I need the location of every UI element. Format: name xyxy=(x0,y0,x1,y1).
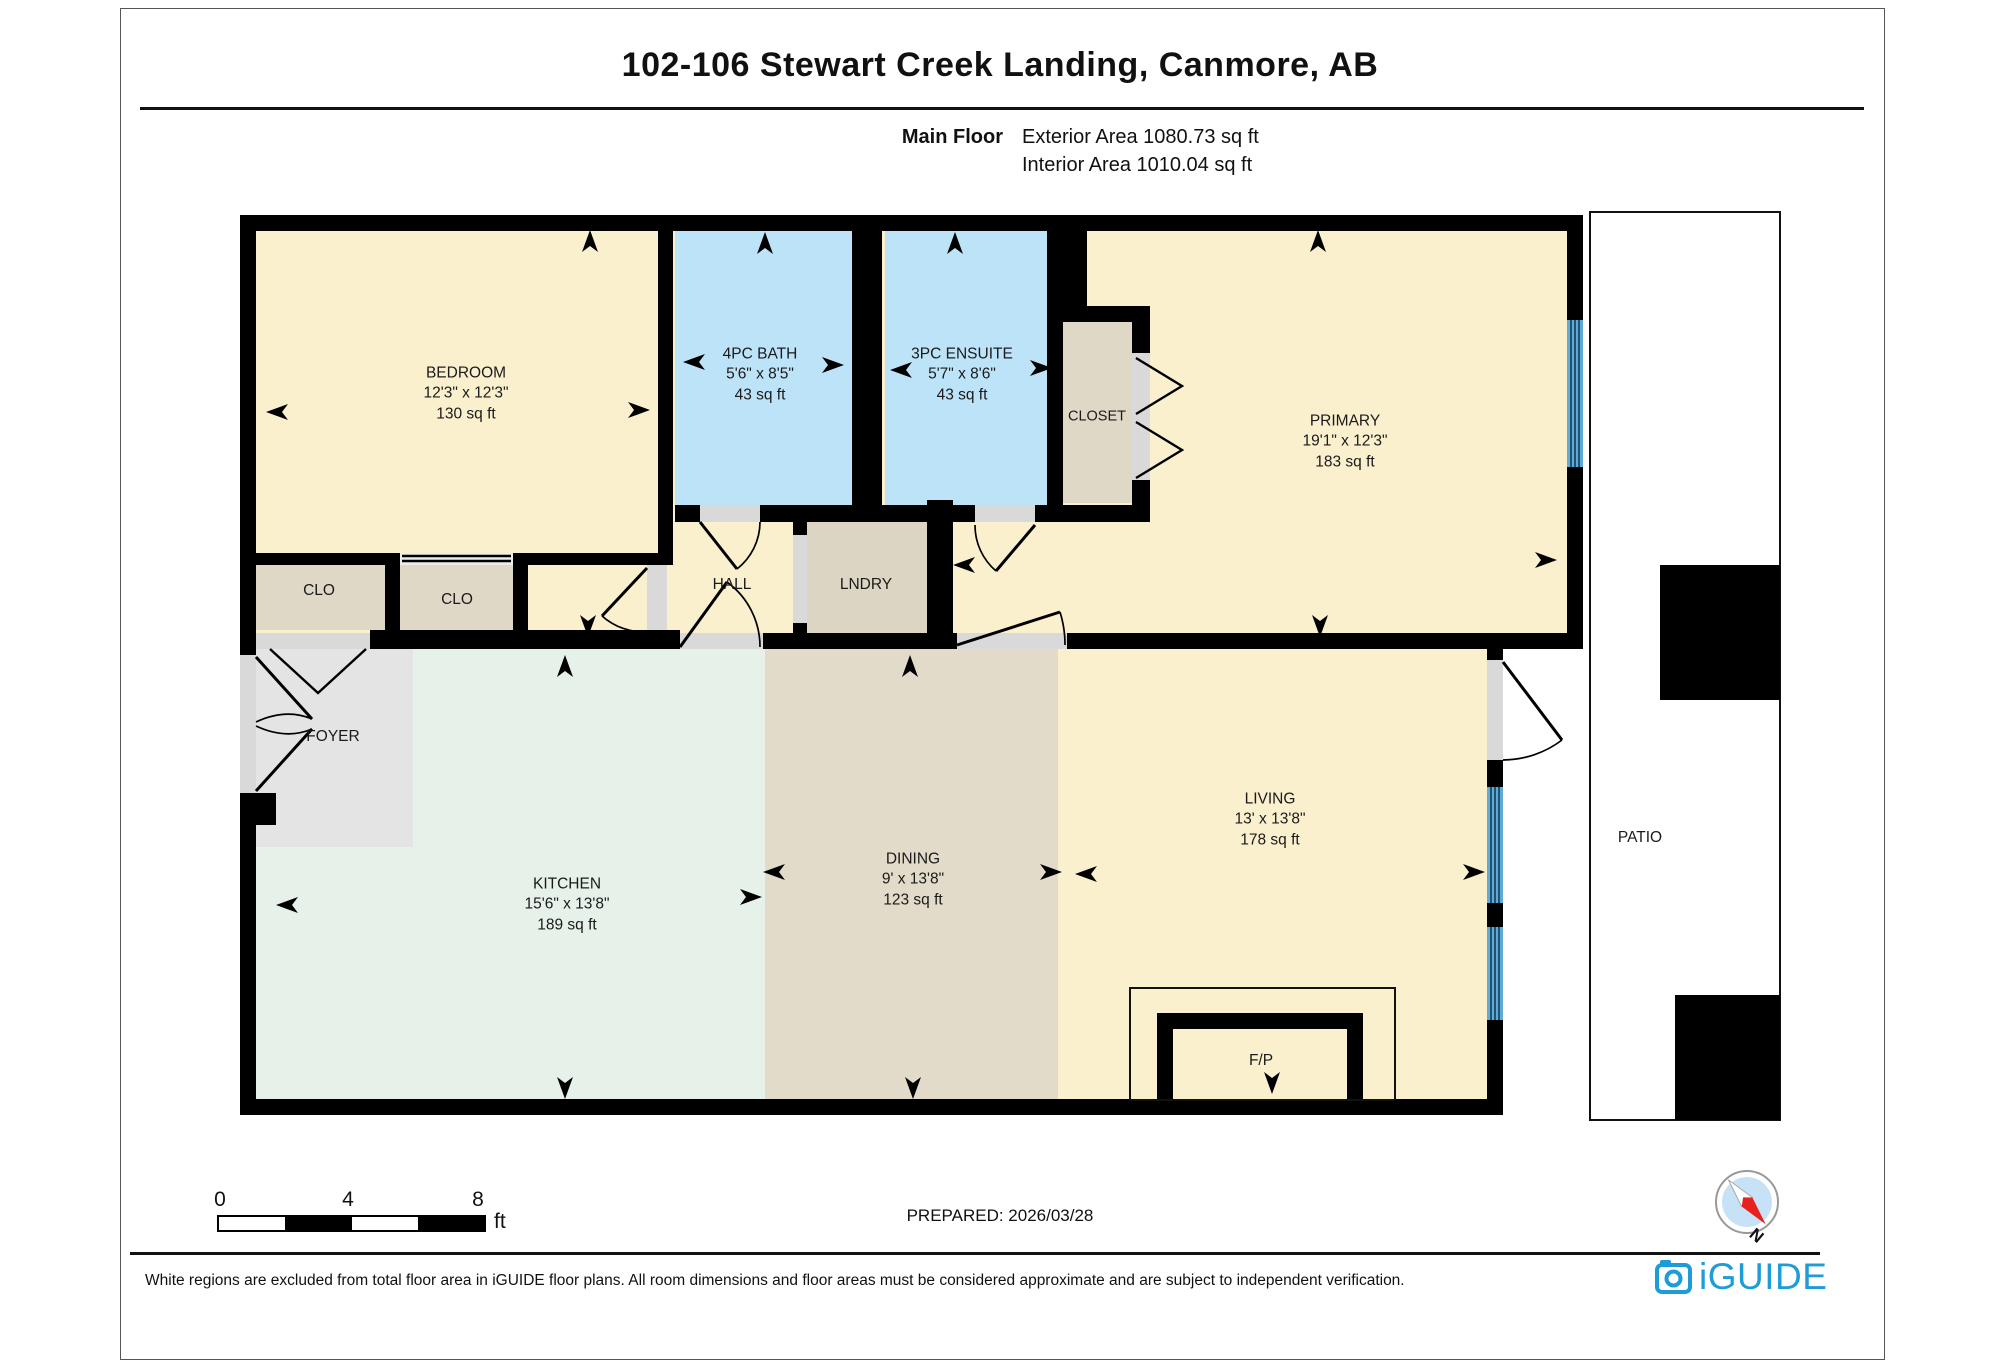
floor-label: Main Floor xyxy=(700,126,1003,149)
room-name: CLO xyxy=(441,590,473,610)
room-dims: 5'6" x 8'5" xyxy=(723,365,798,385)
room-area: 43 sq ft xyxy=(911,385,1013,405)
room-name: CLO xyxy=(303,581,335,601)
room-area: 178 sq ft xyxy=(1235,830,1306,850)
room-area: 189 sq ft xyxy=(524,915,609,935)
room-name: LNDRY xyxy=(840,575,892,595)
room-label-patio: PATIO xyxy=(1618,828,1662,848)
room-dims: 9' x 13'8" xyxy=(882,870,944,890)
room-name: PATIO xyxy=(1618,828,1662,848)
room-name: F/P xyxy=(1249,1051,1273,1071)
room-label-laundry: LNDRY xyxy=(840,575,892,595)
room-name: 3PC ENSUITE xyxy=(911,344,1013,364)
room-label-living: LIVING 13' x 13'8" 178 sq ft xyxy=(1235,789,1306,850)
room-label-fireplace: F/P xyxy=(1249,1051,1273,1071)
room-name: KITCHEN xyxy=(524,874,609,894)
room-name: FOYER xyxy=(306,727,359,747)
room-area: 43 sq ft xyxy=(723,385,798,405)
footer-divider xyxy=(130,1252,1820,1255)
room-label-hall: HALL xyxy=(713,575,752,595)
living-fill xyxy=(1058,649,1487,1099)
room-area: 183 sq ft xyxy=(1302,452,1387,472)
room-dims: 5'7" x 8'6" xyxy=(911,365,1013,385)
room-name: PRIMARY xyxy=(1302,411,1387,431)
room-label-primary: PRIMARY 19'1" x 12'3" 183 sq ft xyxy=(1302,411,1387,472)
room-label-closet: CLOSET xyxy=(1068,407,1126,426)
patio-block-lower xyxy=(1675,995,1780,1120)
disclaimer-text: White regions are excluded from total fl… xyxy=(145,1272,1565,1290)
room-name: LIVING xyxy=(1235,789,1306,809)
room-label-clo2: CLO xyxy=(441,590,473,610)
room-name: DINING xyxy=(882,849,944,869)
iguide-logo: iGUIDE xyxy=(1652,1256,1827,1298)
room-label-bedroom: BEDROOM 12'3" x 12'3" 130 sq ft xyxy=(423,363,508,424)
iguide-wordmark: iGUIDE xyxy=(1699,1256,1827,1298)
title-divider xyxy=(140,107,1864,110)
exterior-area: Exterior Area 1080.73 sq ft xyxy=(1022,126,1259,149)
interior-area: Interior Area 1010.04 sq ft xyxy=(1022,154,1252,177)
room-name: HALL xyxy=(713,575,752,595)
room-dims: 13' x 13'8" xyxy=(1235,810,1306,830)
room-name: BEDROOM xyxy=(423,363,508,383)
room-label-ensuite: 3PC ENSUITE 5'7" x 8'6" 43 sq ft xyxy=(911,344,1013,405)
floor-plan-svg xyxy=(230,200,1800,1130)
room-dims: 12'3" x 12'3" xyxy=(423,384,508,404)
patio-block-upper xyxy=(1660,565,1780,700)
room-label-clo1: CLO xyxy=(303,581,335,601)
room-area: 123 sq ft xyxy=(882,890,944,910)
page-title: 102-106 Stewart Creek Landing, Canmore, … xyxy=(0,46,2000,85)
room-name: CLOSET xyxy=(1068,407,1126,426)
iguide-camera-icon xyxy=(1652,1256,1694,1298)
room-label-bath: 4PC BATH 5'6" x 8'5" 43 sq ft xyxy=(723,344,798,405)
floor-plan: BEDROOM 12'3" x 12'3" 130 sq ft 4PC BATH… xyxy=(230,200,1800,1130)
room-label-kitchen: KITCHEN 15'6" x 13'8" 189 sq ft xyxy=(524,874,609,935)
room-label-foyer: FOYER xyxy=(306,727,359,747)
floorplan-page: 102-106 Stewart Creek Landing, Canmore, … xyxy=(0,0,2000,1366)
room-name: 4PC BATH xyxy=(723,344,798,364)
room-area: 130 sq ft xyxy=(423,404,508,424)
room-dims: 19'1" x 12'3" xyxy=(1302,432,1387,452)
room-dims: 15'6" x 13'8" xyxy=(524,895,609,915)
patio-outline xyxy=(1590,212,1780,1120)
room-label-dining: DINING 9' x 13'8" 123 sq ft xyxy=(882,849,944,910)
